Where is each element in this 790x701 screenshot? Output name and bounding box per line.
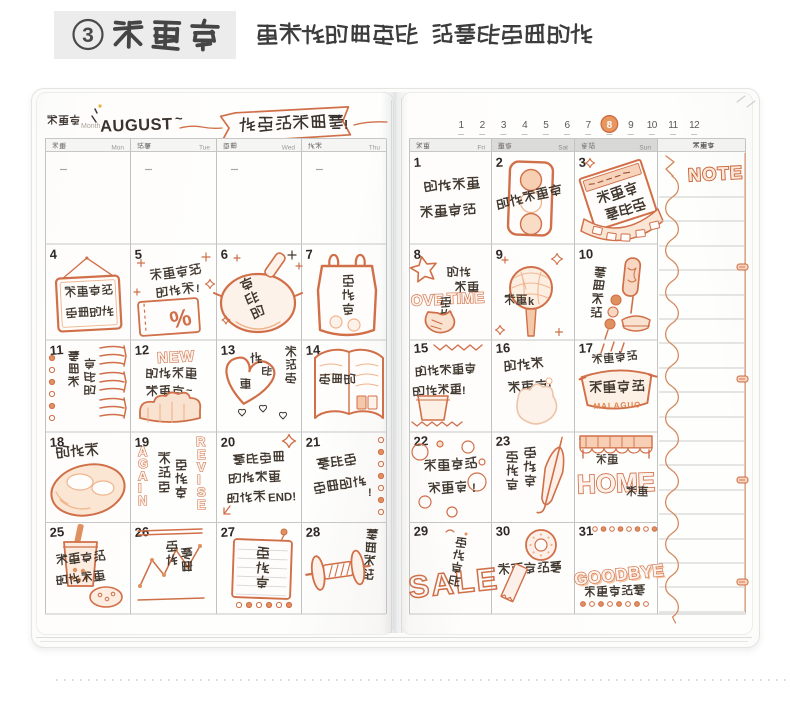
svg-text:END!: END! <box>268 491 297 504</box>
svg-text:2: 2 <box>495 155 503 170</box>
svg-text:30: 30 <box>495 523 510 539</box>
svg-text:9: 9 <box>628 120 634 131</box>
svg-text:12: 12 <box>134 342 149 358</box>
svg-text:Sat: Sat <box>558 145 568 152</box>
svg-text:11: 11 <box>668 120 678 131</box>
svg-text:10: 10 <box>578 246 593 262</box>
svg-text:17: 17 <box>578 340 593 356</box>
svg-text:Month: Month <box>81 123 101 130</box>
svg-text:Thu: Thu <box>369 145 381 152</box>
svg-text:3: 3 <box>501 120 507 131</box>
svg-text:1: 1 <box>458 120 464 131</box>
svg-text:6: 6 <box>564 120 570 131</box>
svg-text:1: 1 <box>413 155 421 170</box>
svg-text:4: 4 <box>522 120 528 131</box>
svg-text:~: ~ <box>550 566 556 577</box>
svg-text:E: E <box>197 497 206 512</box>
svg-text:21: 21 <box>305 434 320 450</box>
svg-text:Tue: Tue <box>199 145 210 152</box>
svg-text:!: ! <box>462 385 466 397</box>
svg-text:AUGUST: AUGUST <box>100 115 173 136</box>
svg-text:25: 25 <box>49 524 64 540</box>
svg-text:12: 12 <box>689 120 700 131</box>
svg-text:3: 3 <box>82 24 94 47</box>
svg-text:4: 4 <box>49 246 58 262</box>
svg-text:5: 5 <box>543 120 549 131</box>
svg-text:Mon: Mon <box>111 145 124 152</box>
svg-text:20: 20 <box>220 434 235 450</box>
svg-text:16: 16 <box>495 340 510 356</box>
svg-text:7: 7 <box>586 120 592 131</box>
svg-text:Fri: Fri <box>477 145 485 152</box>
svg-text:29: 29 <box>413 523 428 539</box>
svg-text:~: ~ <box>175 111 183 126</box>
svg-text:27: 27 <box>220 524 235 540</box>
svg-text:!: ! <box>344 117 349 132</box>
svg-text:HOME: HOME <box>577 467 656 500</box>
svg-text:7: 7 <box>305 247 313 262</box>
svg-text:15: 15 <box>413 340 428 356</box>
svg-text:Sun: Sun <box>639 145 651 152</box>
svg-text:MALAGUO: MALAGUO <box>594 400 642 411</box>
svg-text:!: ! <box>196 283 200 295</box>
svg-text:k: k <box>528 296 535 308</box>
svg-text:NOTE: NOTE <box>688 162 744 185</box>
svg-text:28: 28 <box>305 524 320 540</box>
svg-text:!: ! <box>368 487 372 499</box>
svg-text:Wed: Wed <box>282 145 296 152</box>
svg-text:13: 13 <box>220 342 235 358</box>
svg-text:26: 26 <box>134 524 149 540</box>
svg-text:23: 23 <box>495 433 510 449</box>
svg-text:2: 2 <box>480 120 486 131</box>
svg-text:NEW: NEW <box>157 348 196 367</box>
svg-text:OVE: OVE <box>411 292 445 310</box>
svg-text:8: 8 <box>607 120 613 131</box>
svg-text:6: 6 <box>220 247 228 262</box>
svg-text:N: N <box>138 493 147 508</box>
svg-text:!: ! <box>472 483 476 495</box>
svg-text:31: 31 <box>578 523 593 539</box>
svg-text:10: 10 <box>647 120 658 131</box>
svg-text:TIME: TIME <box>447 289 485 307</box>
svg-text:3: 3 <box>578 155 586 170</box>
